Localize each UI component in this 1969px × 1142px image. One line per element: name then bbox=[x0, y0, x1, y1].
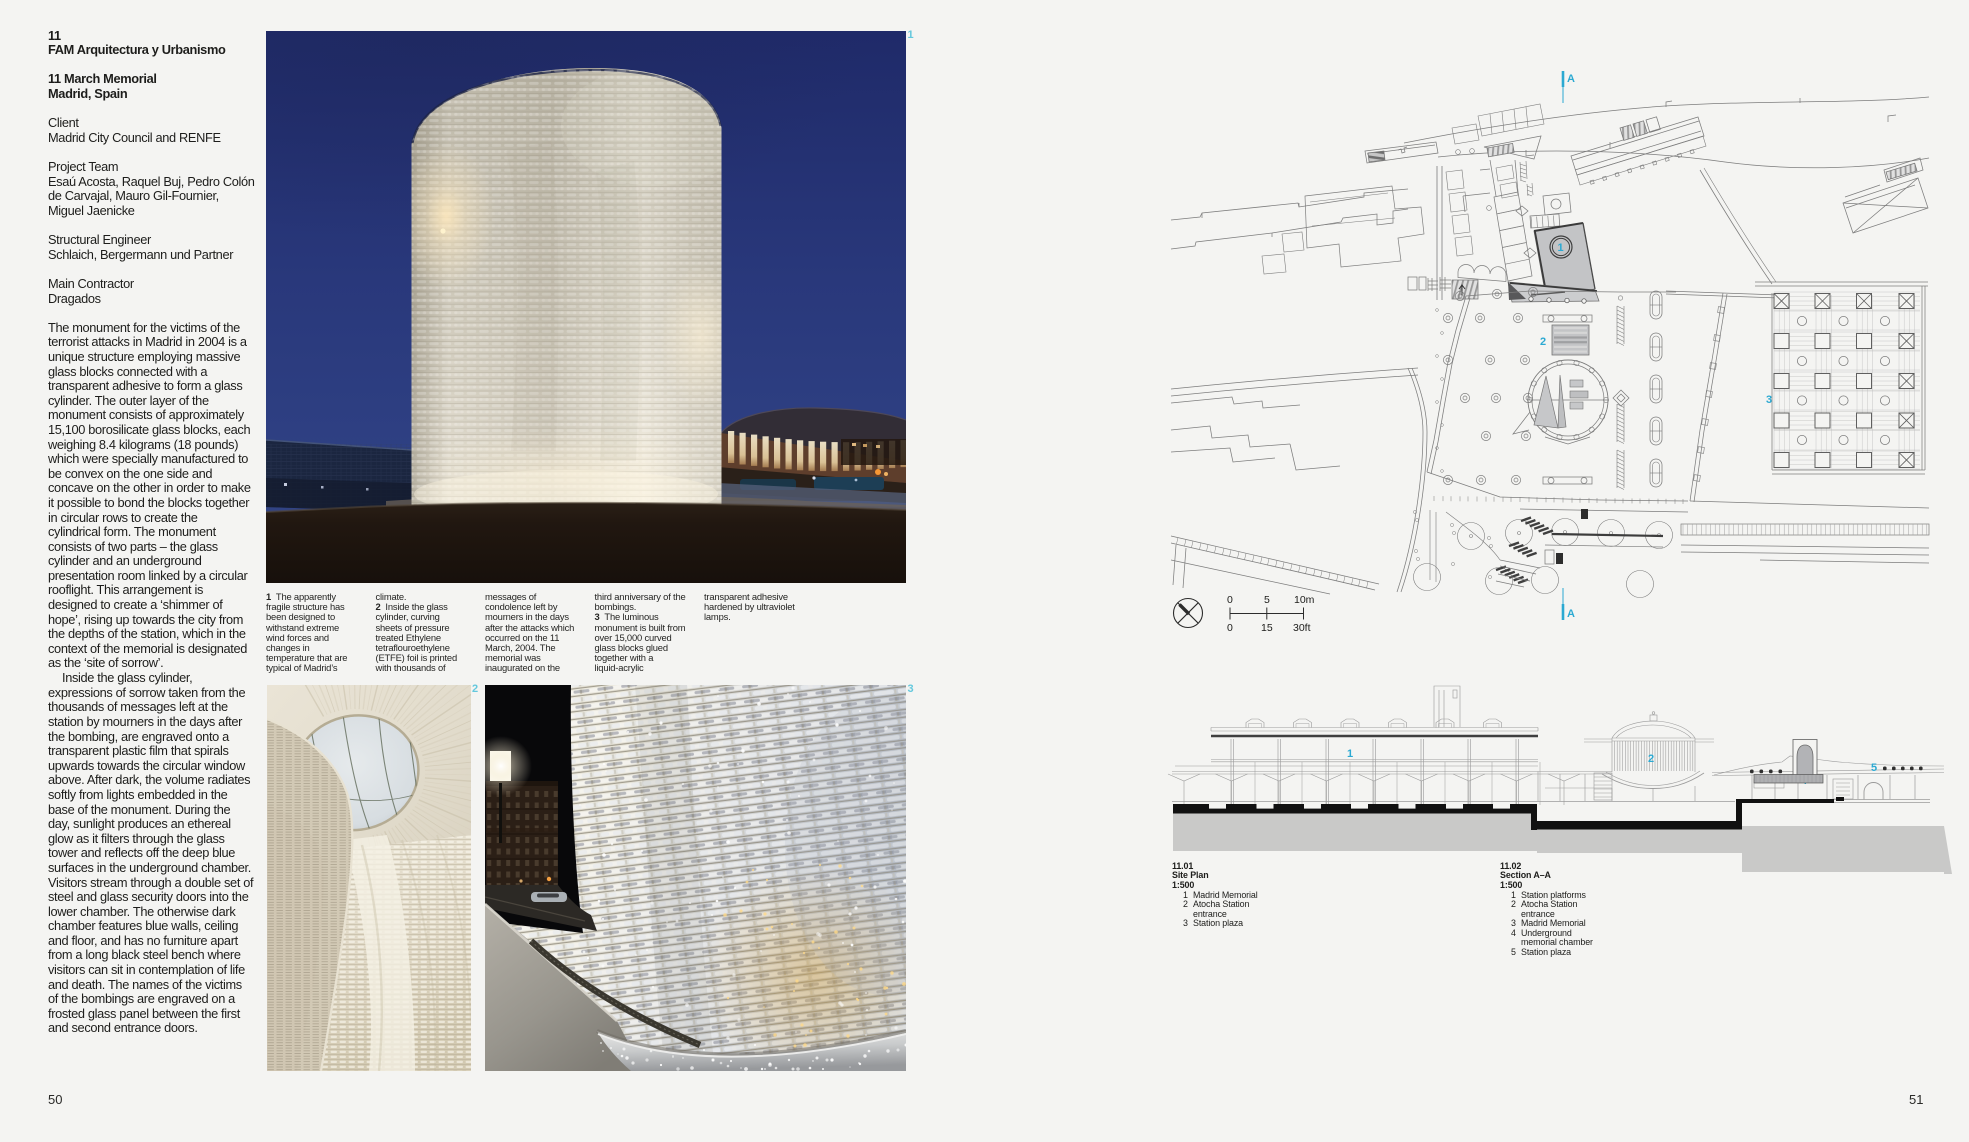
svg-text:1: 1 bbox=[1347, 748, 1353, 760]
svg-text:A: A bbox=[1567, 73, 1575, 85]
svg-text:15: 15 bbox=[1261, 622, 1273, 634]
svg-text:0: 0 bbox=[1227, 622, 1233, 634]
svg-text:0: 0 bbox=[1227, 594, 1233, 606]
svg-text:3: 3 bbox=[1766, 394, 1772, 406]
svg-text:30ft: 30ft bbox=[1293, 622, 1311, 634]
svg-text:2: 2 bbox=[1540, 336, 1546, 348]
svg-text:A: A bbox=[1567, 608, 1575, 620]
svg-text:2: 2 bbox=[1648, 753, 1654, 765]
svg-text:1: 1 bbox=[1558, 242, 1564, 254]
svg-text:5: 5 bbox=[1264, 594, 1270, 606]
svg-text:10m: 10m bbox=[1294, 594, 1315, 606]
svg-text:5: 5 bbox=[1871, 762, 1877, 774]
